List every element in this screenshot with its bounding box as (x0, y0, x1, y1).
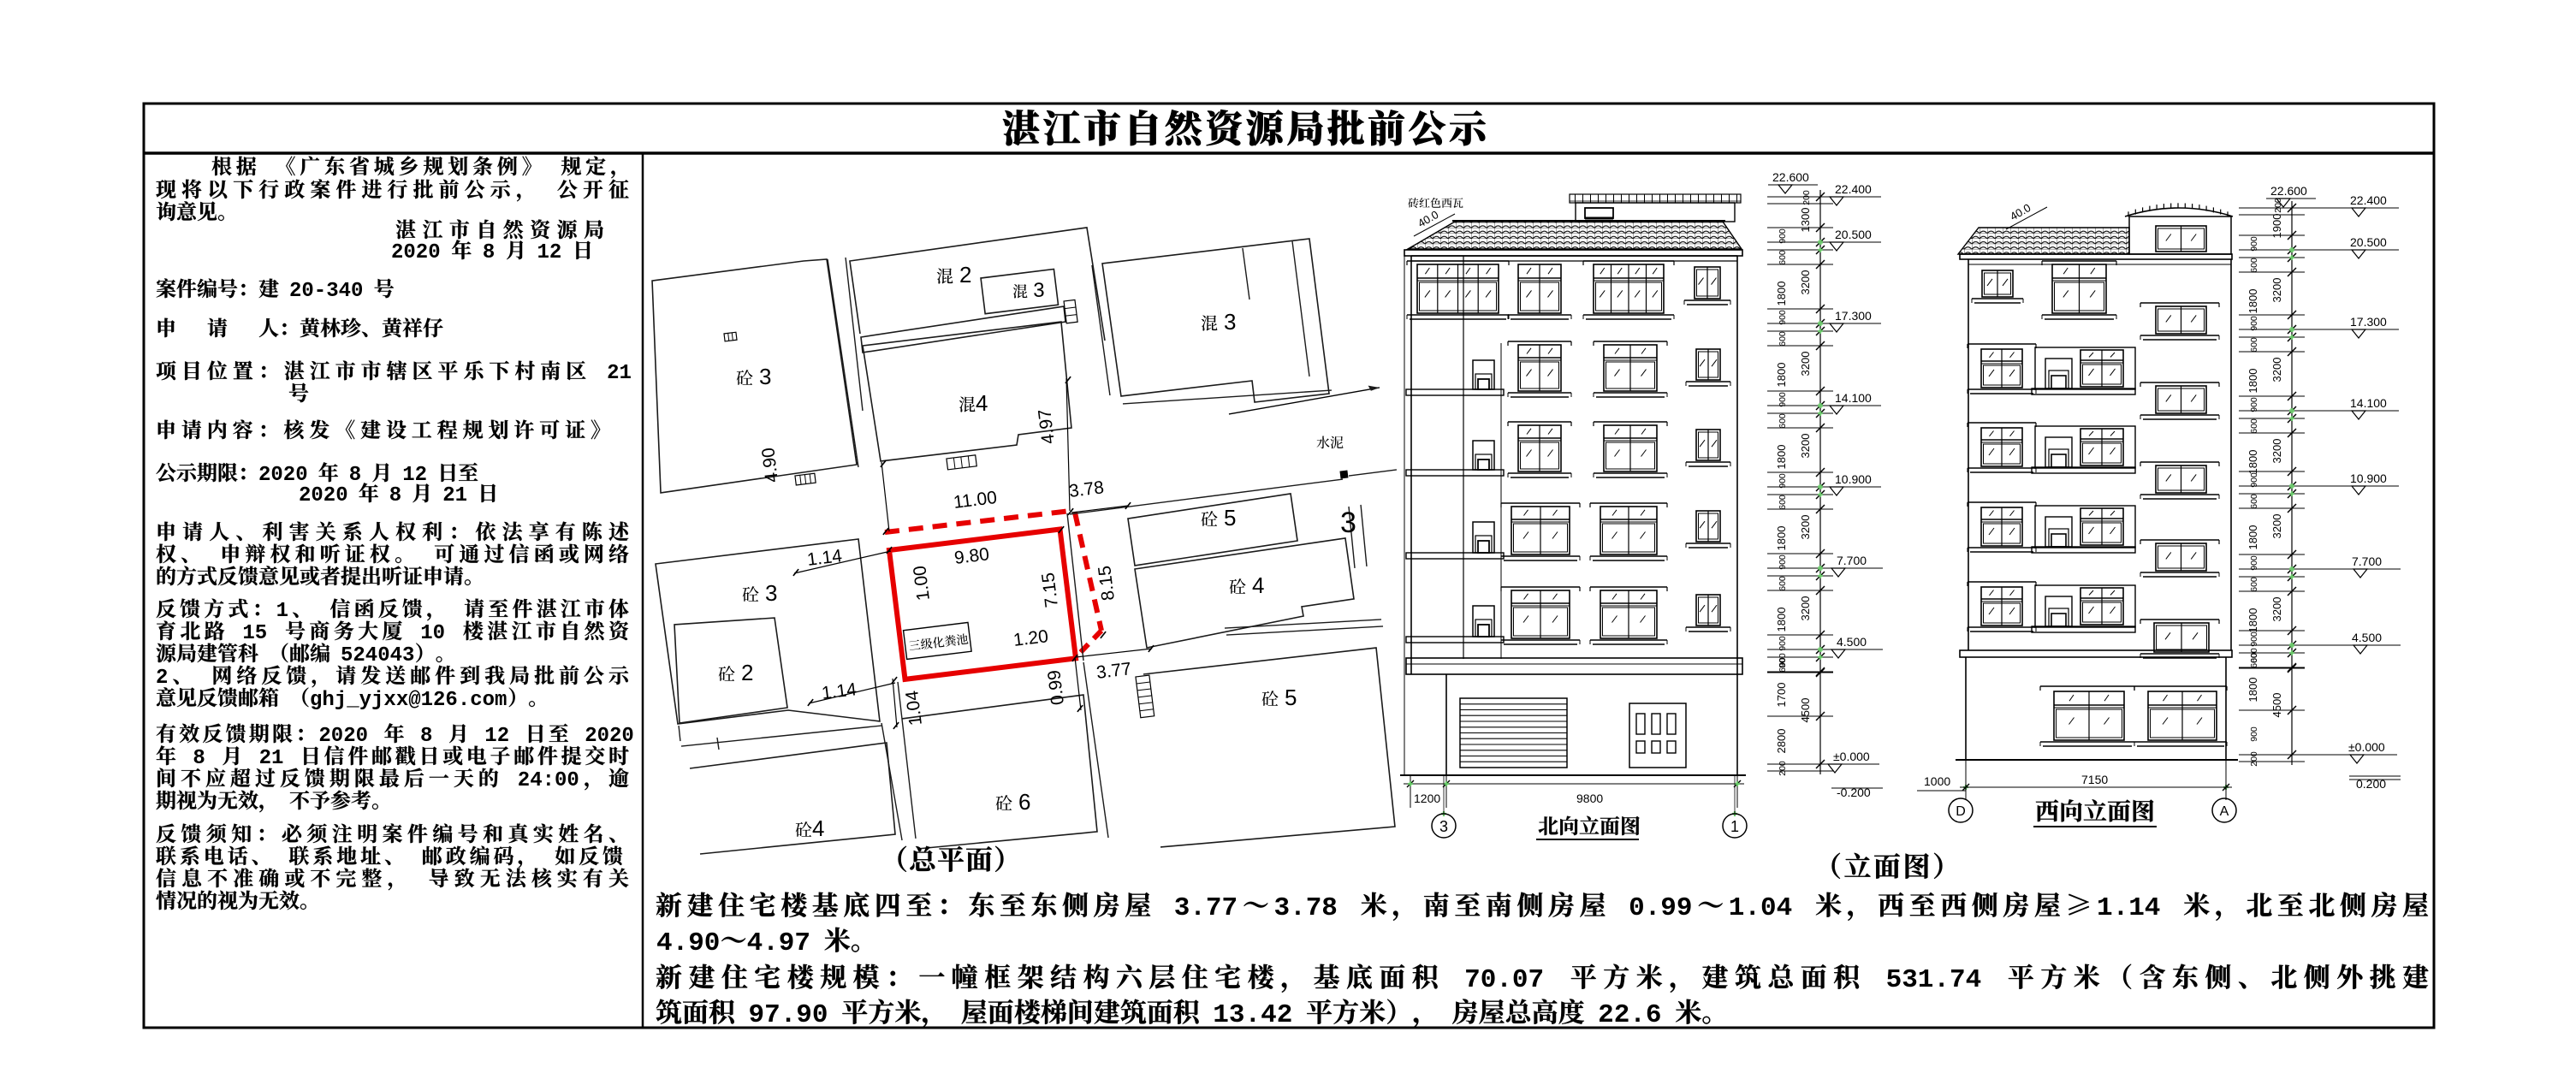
svg-text:4500: 4500 (1799, 698, 1812, 723)
svg-text:900: 900 (1778, 392, 1788, 407)
svg-text:40.0: 40.0 (2008, 201, 2033, 223)
svg-text:600: 600 (1778, 250, 1788, 265)
svg-text:14.100: 14.100 (2350, 396, 2387, 410)
svg-text:22.6: 22.6 (1598, 1000, 1661, 1030)
svg-text:1800: 1800 (1775, 282, 1788, 306)
svg-text:3200: 3200 (2270, 514, 2283, 539)
svg-text:24:00: 24:00 (518, 769, 579, 792)
svg-text:900: 900 (2249, 631, 2259, 647)
svg-text:600: 600 (1778, 331, 1788, 347)
svg-text:22.400: 22.400 (1835, 182, 1872, 196)
svg-text:13.42: 13.42 (1213, 1000, 1292, 1030)
svg-text:1.14: 1.14 (2097, 893, 2160, 923)
svg-text:600: 600 (2249, 337, 2259, 353)
svg-text:21: 21 (259, 747, 284, 770)
svg-text:20.500: 20.500 (1835, 228, 1872, 241)
svg-text:3200: 3200 (2270, 278, 2283, 303)
svg-text:4.500: 4.500 (1837, 635, 1867, 649)
svg-text:600: 600 (2249, 258, 2259, 273)
svg-text:D: D (1956, 804, 1966, 819)
svg-text:6: 6 (1018, 789, 1030, 815)
svg-text:±0.000: ±0.000 (1833, 750, 1870, 763)
svg-text:3: 3 (1033, 279, 1044, 302)
svg-text:10.900: 10.900 (1835, 472, 1872, 486)
svg-text:0.99: 0.99 (1044, 669, 1068, 706)
svg-text:7.700: 7.700 (1837, 554, 1867, 567)
svg-text:1.04: 1.04 (902, 690, 926, 727)
svg-text:3: 3 (1224, 309, 1236, 335)
svg-text:200: 200 (2249, 751, 2259, 767)
svg-text:3: 3 (1439, 818, 1448, 835)
svg-text:4.97: 4.97 (747, 928, 810, 958)
svg-text:5: 5 (1224, 505, 1236, 531)
svg-text:±0.000: ±0.000 (2348, 740, 2385, 754)
svg-text:15: 15 (242, 622, 267, 645)
svg-text:7.15: 7.15 (1038, 572, 1062, 608)
svg-text:2020: 2020 (585, 725, 634, 748)
svg-text:20-340: 20-340 (289, 280, 363, 303)
svg-text:3.78: 3.78 (1274, 893, 1338, 923)
svg-text:900: 900 (1778, 636, 1788, 651)
svg-text:3200: 3200 (2270, 597, 2283, 622)
svg-text:900: 900 (2249, 726, 2259, 742)
svg-text:1800: 1800 (1775, 608, 1788, 632)
svg-text:22.600: 22.600 (2270, 184, 2307, 198)
svg-text:4: 4 (812, 815, 824, 841)
svg-text:1800: 1800 (2247, 608, 2259, 633)
svg-text:900: 900 (1778, 473, 1788, 489)
svg-text:1200: 1200 (1414, 792, 1440, 805)
svg-text:1: 1 (276, 600, 288, 623)
svg-text:1800: 1800 (2247, 369, 2259, 394)
svg-text:8: 8 (483, 241, 495, 264)
svg-text:21: 21 (607, 362, 632, 385)
svg-text:2020: 2020 (318, 725, 368, 748)
svg-text:22.400: 22.400 (2350, 193, 2387, 207)
svg-text:3200: 3200 (1799, 596, 1812, 621)
svg-text:11.00: 11.00 (953, 488, 998, 513)
svg-text:3200: 3200 (1799, 270, 1812, 295)
svg-text:22.600: 22.600 (1772, 170, 1809, 184)
svg-text:20.500: 20.500 (2350, 235, 2387, 249)
svg-text:2020: 2020 (299, 484, 348, 507)
svg-text:3: 3 (765, 580, 777, 606)
svg-text:1000: 1000 (1924, 774, 1950, 788)
svg-text:900: 900 (2249, 316, 2259, 331)
svg-text:8: 8 (389, 484, 401, 507)
svg-text:1800: 1800 (2247, 450, 2259, 475)
svg-text:8: 8 (420, 725, 432, 748)
svg-text:17.300: 17.300 (2350, 315, 2387, 329)
svg-text:7150: 7150 (2081, 773, 2108, 786)
svg-text:900: 900 (1778, 653, 1788, 668)
svg-text:900: 900 (2249, 397, 2259, 412)
svg-text:10: 10 (420, 622, 445, 645)
svg-text:1800: 1800 (1775, 526, 1788, 551)
svg-text:600: 600 (1778, 413, 1788, 429)
svg-text:1800: 1800 (2247, 525, 2259, 550)
svg-text:A: A (2220, 804, 2229, 819)
svg-text:1800: 1800 (1775, 363, 1788, 388)
svg-text:12: 12 (537, 241, 562, 264)
svg-text:4: 4 (976, 390, 988, 416)
svg-text:900: 900 (2249, 236, 2259, 252)
svg-text:900: 900 (2249, 472, 2259, 488)
svg-text:1300: 1300 (1799, 208, 1812, 233)
svg-text:900: 900 (1778, 310, 1788, 325)
svg-text:3.77: 3.77 (1095, 659, 1132, 683)
svg-text:5: 5 (1285, 685, 1297, 710)
svg-text:9800: 9800 (1576, 792, 1603, 805)
svg-text:4.97: 4.97 (1035, 408, 1059, 445)
svg-text:40.0: 40.0 (1416, 208, 1440, 230)
svg-text:70.07: 70.07 (1464, 965, 1544, 995)
svg-text:3: 3 (1340, 507, 1356, 539)
svg-text:1.14: 1.14 (806, 546, 844, 570)
svg-text:1: 1 (1730, 818, 1739, 835)
svg-text:2800: 2800 (1775, 729, 1788, 754)
svg-text:200: 200 (1801, 190, 1812, 205)
svg-text:1800: 1800 (2247, 289, 2259, 314)
svg-text:600: 600 (2249, 648, 2259, 663)
svg-text:600: 600 (1778, 576, 1788, 591)
svg-text:200: 200 (2273, 198, 2283, 213)
svg-text:12: 12 (402, 464, 427, 487)
svg-text:17.300: 17.300 (1835, 309, 1872, 323)
svg-text:531.74: 531.74 (1886, 965, 1982, 995)
svg-text:12: 12 (484, 725, 509, 748)
svg-text:2: 2 (741, 660, 753, 685)
svg-text:2020: 2020 (258, 464, 308, 487)
svg-text:600: 600 (2249, 494, 2259, 509)
svg-text:3.77: 3.77 (1174, 893, 1238, 923)
svg-text:1.20: 1.20 (1012, 626, 1049, 650)
svg-text:1900: 1900 (2270, 214, 2283, 239)
svg-text:1.14: 1.14 (821, 679, 858, 703)
svg-text:600: 600 (2249, 577, 2259, 592)
svg-text:3200: 3200 (1799, 515, 1812, 540)
svg-text:600: 600 (2249, 418, 2259, 434)
svg-text:2020: 2020 (391, 241, 441, 264)
svg-text:4: 4 (1252, 572, 1264, 598)
svg-text:3200: 3200 (2270, 439, 2283, 464)
svg-text:ghj_yjxx@126.com: ghj_yjxx@126.com (310, 689, 507, 712)
svg-text:1.04: 1.04 (1729, 893, 1792, 923)
svg-text:8.15: 8.15 (1095, 565, 1119, 602)
svg-text:1800: 1800 (1775, 445, 1788, 470)
svg-text:97.90: 97.90 (749, 1000, 828, 1030)
svg-text:2: 2 (156, 667, 168, 690)
svg-text:0.200: 0.200 (2356, 777, 2386, 791)
svg-text:2: 2 (959, 262, 971, 288)
svg-text:9.80: 9.80 (953, 544, 990, 568)
svg-text:524043: 524043 (341, 644, 414, 667)
svg-text:4.90: 4.90 (656, 928, 720, 958)
svg-text:3200: 3200 (2270, 358, 2283, 382)
svg-text:3: 3 (759, 364, 771, 389)
svg-text:0.99: 0.99 (1629, 893, 1692, 923)
svg-text:8: 8 (349, 464, 361, 487)
svg-text:4.500: 4.500 (2352, 631, 2382, 644)
svg-text:-0.200: -0.200 (1837, 786, 1871, 799)
svg-text:10.900: 10.900 (2350, 471, 2387, 485)
svg-text:600: 600 (1778, 495, 1788, 510)
svg-text:200: 200 (1778, 761, 1788, 776)
svg-text:21: 21 (442, 484, 467, 507)
svg-text:14.100: 14.100 (1835, 391, 1872, 405)
svg-text:1700: 1700 (1775, 683, 1788, 708)
svg-text:900: 900 (2249, 555, 2259, 571)
svg-text:1800: 1800 (2247, 678, 2259, 703)
svg-text:3200: 3200 (1799, 352, 1812, 377)
svg-text:7.700: 7.700 (2352, 554, 2382, 568)
svg-text:4500: 4500 (2270, 693, 2283, 718)
svg-text:900: 900 (1778, 228, 1788, 244)
svg-text:8: 8 (193, 747, 205, 770)
svg-text:4.90: 4.90 (758, 447, 782, 483)
svg-text:900: 900 (1778, 554, 1788, 570)
svg-text:3.78: 3.78 (1068, 477, 1105, 501)
svg-text:3200: 3200 (1799, 434, 1812, 459)
svg-text:1.00: 1.00 (910, 565, 934, 602)
